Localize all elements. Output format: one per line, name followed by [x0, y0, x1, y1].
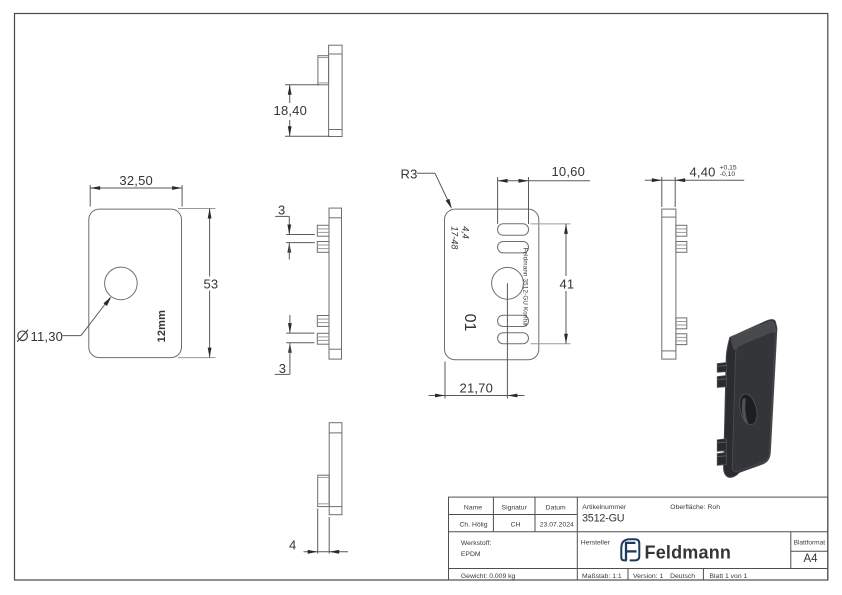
svg-text:4: 4 [289, 538, 296, 553]
svg-text:Roh: Roh [708, 504, 721, 511]
svg-text:Signatur: Signatur [502, 505, 528, 512]
svg-text:12mm: 12mm [156, 310, 168, 343]
svg-text:R3: R3 [401, 167, 418, 182]
svg-text:Datum: Datum [546, 505, 566, 512]
svg-text:10,60: 10,60 [552, 164, 586, 179]
svg-text:-0,10: -0,10 [720, 171, 736, 178]
svg-text:Version: 1: Version: 1 [633, 573, 663, 580]
svg-text:Werkstoff:: Werkstoff: [461, 540, 491, 547]
svg-text:Artikelnummer: Artikelnummer [582, 504, 627, 511]
svg-text:Ch. Hölig: Ch. Hölig [460, 522, 488, 529]
svg-text:41: 41 [560, 277, 575, 292]
svg-text:EPDM: EPDM [461, 551, 481, 558]
svg-text:Maßstab: 1:1: Maßstab: 1:1 [582, 573, 622, 580]
svg-text:3512-GU: 3512-GU [582, 512, 624, 524]
svg-text:A4: A4 [803, 553, 818, 565]
svg-text:Gewicht: 0.009 kg: Gewicht: 0.009 kg [461, 573, 516, 580]
svg-text:32,50: 32,50 [119, 173, 153, 188]
svg-text:18,40: 18,40 [274, 103, 308, 118]
svg-text:21,70: 21,70 [460, 381, 494, 396]
svg-text:Oberfläche:: Oberfläche: [670, 504, 705, 511]
svg-text:01: 01 [461, 314, 478, 332]
svg-text:Name: Name [464, 505, 482, 512]
svg-text:Blatt 1 von 1: Blatt 1 von 1 [710, 573, 748, 580]
svg-text:Hersteller: Hersteller [581, 540, 611, 547]
svg-text:3: 3 [278, 203, 285, 218]
svg-text:CH: CH [511, 522, 521, 529]
svg-text:4,40: 4,40 [690, 164, 716, 179]
svg-text:23.07.2024: 23.07.2024 [540, 522, 574, 529]
svg-text:Feldmann 3512-GU Kontur: Feldmann 3512-GU Kontur [522, 248, 529, 327]
svg-text:Feldmann: Feldmann [645, 542, 732, 562]
svg-text:Blattformat: Blattformat [794, 540, 826, 547]
svg-text:11,30: 11,30 [31, 329, 64, 344]
svg-text:3: 3 [279, 361, 286, 376]
svg-text:Deutsch: Deutsch [670, 573, 695, 580]
svg-text:53: 53 [204, 276, 219, 291]
